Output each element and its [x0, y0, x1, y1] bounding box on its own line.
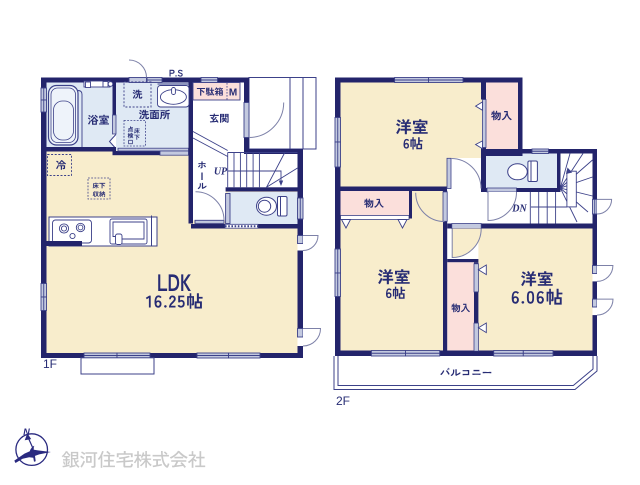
svg-text:DN: DN [511, 204, 527, 215]
svg-text:M: M [229, 88, 237, 99]
svg-text:N: N [23, 427, 30, 437]
svg-text:UP: UP [214, 167, 228, 178]
svg-text:1F: 1F [43, 357, 57, 371]
svg-text:2F: 2F [336, 394, 350, 408]
